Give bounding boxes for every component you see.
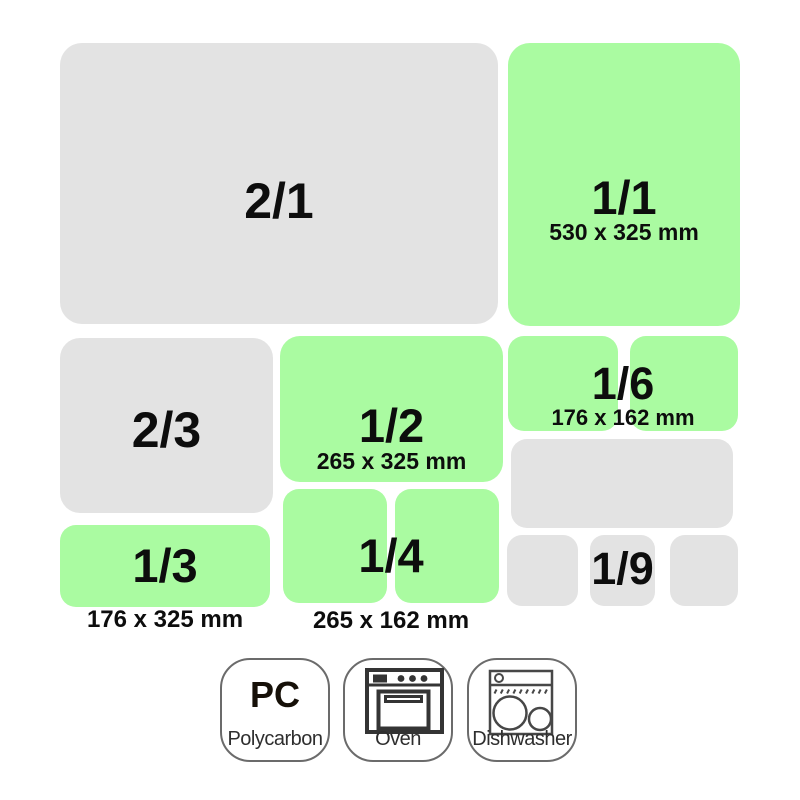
polycarbonate-abbr: PC (222, 674, 328, 716)
gastronorm-size-diagram: 2/1 1/1 530 x 325 mm 2/3 1/2 265 x 325 m… (0, 0, 800, 800)
pan-1-1: 1/1 530 x 325 mm (508, 43, 740, 326)
pan-1-6-right (630, 336, 738, 431)
pan-1-3-label: 1/3 (132, 544, 197, 587)
pan-2-1: 2/1 (60, 43, 498, 324)
dishwasher-label: Dishwasher (469, 728, 575, 751)
pan-unlabeled-gray (511, 439, 733, 528)
pan-1-1-dims: 530 x 325 mm (549, 219, 699, 245)
oven-label: Oven (345, 728, 451, 751)
pan-1-3-dims: 176 x 325 mm (60, 606, 270, 634)
pan-2-1-label: 2/1 (244, 178, 314, 224)
pan-1-9-right (670, 535, 738, 606)
pan-1-2: 1/2 265 x 325 mm (280, 336, 503, 482)
pan-1-6-left (508, 336, 618, 431)
pan-1-4-dims: 265 x 162 mm (283, 607, 499, 635)
polycarbonate-badge: PC Polycarbon (220, 658, 330, 762)
pan-1-1-label: 1/1 (591, 176, 656, 219)
pan-1-9-left (507, 535, 578, 606)
pan-2-3: 2/3 (60, 338, 273, 513)
pan-1-1-text-group: 1/1 530 x 325 mm (549, 176, 699, 246)
polycarbonate-label: Polycarbon (222, 728, 328, 751)
pan-1-2-dims: 265 x 325 mm (317, 448, 467, 474)
pan-2-3-label: 2/3 (132, 407, 202, 453)
pan-1-4-left (283, 489, 387, 603)
dishwasher-badge: Dishwasher (467, 658, 577, 762)
pan-1-4-right (395, 489, 499, 603)
oven-badge: Oven (343, 658, 453, 762)
pan-1-3: 1/3 (60, 525, 270, 607)
pan-1-9-middle (590, 535, 655, 606)
pan-1-2-label: 1/2 (359, 404, 424, 447)
